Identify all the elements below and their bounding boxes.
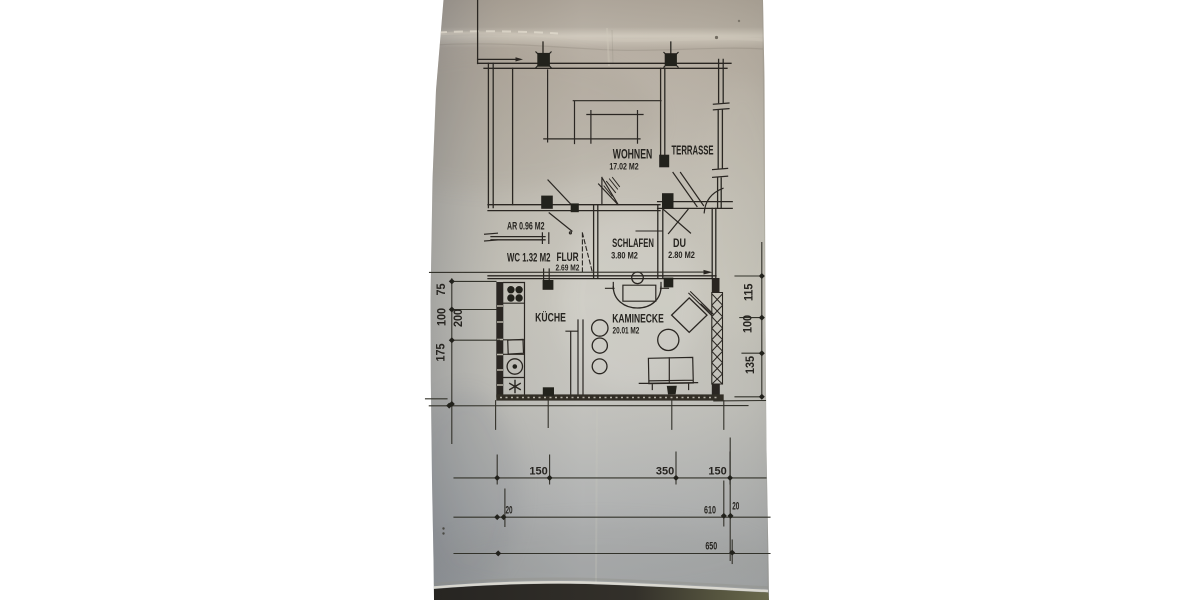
- svg-text:115: 115: [743, 283, 756, 301]
- svg-text:350: 350: [656, 466, 674, 478]
- svg-text:150: 150: [529, 466, 547, 478]
- svg-text:200: 200: [453, 309, 466, 327]
- svg-text:100: 100: [436, 308, 449, 326]
- svg-text:2.80 M2: 2.80 M2: [668, 249, 695, 260]
- svg-text:150: 150: [708, 466, 726, 478]
- svg-text:17.02 M2: 17.02 M2: [609, 162, 639, 172]
- svg-text:75: 75: [436, 283, 449, 296]
- svg-text:AR 0.96 M2: AR 0.96 M2: [507, 220, 544, 232]
- svg-text:3.80 M2: 3.80 M2: [611, 250, 638, 261]
- svg-text:20.01 M2: 20.01 M2: [613, 325, 640, 336]
- svg-text:20: 20: [732, 500, 739, 512]
- svg-text:175: 175: [435, 343, 448, 362]
- svg-text:KAMINECKE: KAMINECKE: [612, 313, 664, 326]
- svg-text:WC 1.32 M2: WC 1.32 M2: [507, 252, 551, 265]
- svg-text:100: 100: [742, 315, 755, 333]
- svg-text:610: 610: [704, 504, 716, 516]
- svg-text:KÜCHE: KÜCHE: [535, 310, 566, 325]
- svg-text:20: 20: [505, 504, 512, 516]
- svg-text:WOHNEN: WOHNEN: [613, 146, 652, 162]
- svg-text:135: 135: [745, 355, 758, 374]
- svg-text:650: 650: [705, 540, 717, 552]
- svg-text:TERRASSE: TERRASSE: [671, 145, 713, 158]
- svg-text:2.69 M2: 2.69 M2: [556, 263, 580, 273]
